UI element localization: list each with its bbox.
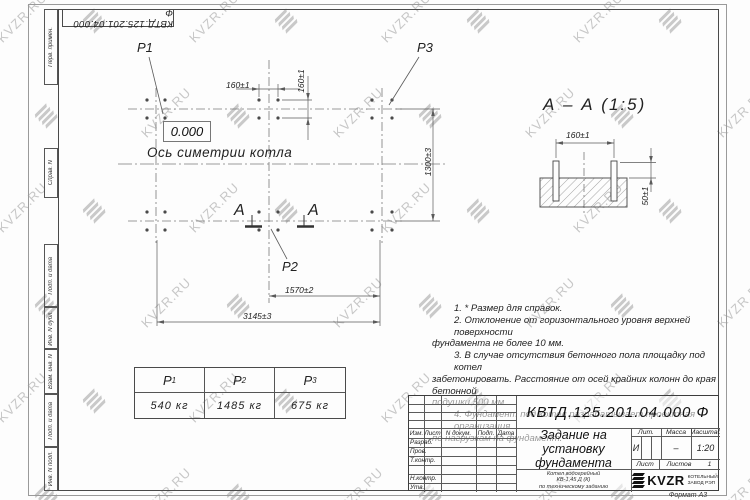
margin-field-inv-podl: Инв. N подл.: [44, 447, 58, 491]
tb-title: Задание на установку фундамента: [516, 428, 631, 469]
tb-subtitle: Котел водогрейный КВ-1,45 Д (К) по техни…: [516, 469, 631, 492]
tb-sig-empty: [410, 465, 441, 474]
tb-lit-value: И: [631, 436, 641, 459]
tb-sig-prov: Пров.: [410, 447, 441, 456]
tb-sig-tkontr: Т.контр.: [410, 456, 441, 465]
tb-mass-value: –: [661, 436, 691, 459]
load-table-value: 540 кг: [135, 393, 205, 418]
dim-mid-span: 1570±2: [285, 285, 313, 295]
load-label-p2: P2: [282, 259, 298, 274]
section-letter-left: А: [234, 202, 245, 220]
tb-title-line: Задание на: [540, 428, 607, 442]
tb-mass-label: Масса: [661, 428, 691, 436]
margin-label: Справ. N: [48, 160, 54, 185]
corner-doc-number: КВТД.125.201.04.000 Ф: [63, 7, 173, 29]
tb-col-izm: Изм.: [409, 429, 424, 438]
load-table-header: P2: [205, 368, 275, 393]
load-table-value: 675 кг: [275, 393, 345, 418]
load-header-sub: 1: [172, 376, 176, 385]
margin-field-sprav-n: Справ. N: [44, 148, 58, 198]
load-table-header: P3: [275, 368, 345, 393]
boiler-symmetry-axis-label: Ось симетрии котла: [147, 145, 292, 160]
tb-title-line: фундамента: [535, 456, 612, 470]
margin-field-podp-data-2: Подп. и дата: [44, 394, 58, 447]
tb-col-data: Дата: [496, 429, 516, 438]
load-table-value: 1485 кг: [205, 393, 275, 418]
margin-label: Подп. и дата: [48, 402, 54, 440]
tb-col-podp: Подп.: [476, 429, 496, 438]
tb-line: [409, 412, 516, 413]
note-line: 2. Отклонение от горизонтального уровня …: [432, 315, 724, 339]
note-line: 3. В случае отсутствия бетонного пола пл…: [432, 350, 724, 374]
dim-section-bolt-spacing: 160±1: [566, 130, 590, 140]
note-line: забетонировать. Расстояние от осей крайн…: [432, 374, 724, 398]
format-label: Формат А3: [648, 492, 728, 499]
tb-title-line: установку: [542, 442, 604, 456]
margin-field-inv-dubl: Инв. N дубл.: [44, 307, 58, 349]
tb-line: [476, 396, 477, 492]
level-mark: 0.000: [163, 121, 211, 142]
tb-line: [441, 396, 442, 492]
load-label-p1: P1: [137, 40, 153, 55]
tb-col-ndocum: N докум.: [441, 429, 476, 438]
tb-sheets-value: 1: [699, 459, 720, 469]
tb-sheets-label: Листов: [659, 459, 699, 469]
margin-field-vzam-inv: Взам. инв. N: [44, 349, 58, 394]
margin-field-podp-data-1: Подп. и дата: [44, 244, 58, 307]
tb-lit-label: Лит.: [631, 428, 661, 436]
kvzr-logo-text: KVZR: [647, 473, 684, 488]
tb-subtitle-line: по техническому заданию: [539, 484, 608, 490]
tb-line: [409, 420, 516, 421]
dim-total-span: 3145±3: [243, 311, 271, 321]
margin-label: Подп. и дата: [48, 257, 54, 295]
tb-line: [409, 404, 516, 405]
tb-logo-row: KVZR КОТЕЛЬНЫЙ ЗАВОД РЭП: [631, 469, 720, 492]
load-table: P1 P2 P3 540 кг 1485 кг 675 кг: [134, 367, 346, 419]
kvzr-company-name: КОТЕЛЬНЫЙ ЗАВОД РЭП: [688, 475, 718, 486]
tb-sig-utv: Утв.: [410, 483, 441, 492]
load-table-header: P1: [135, 368, 205, 393]
load-header-base: P: [303, 373, 312, 388]
dim-bolt-spacing-y: 160±1: [296, 59, 306, 103]
level-value: 0.000: [171, 124, 204, 139]
corner-doc-number-stamp: КВТД.125.201.04.000 Ф: [62, 9, 174, 27]
section-view-title: А – А (1:5): [543, 95, 646, 115]
note-line: 1. * Размер для справок.: [432, 303, 724, 315]
section-letter-right: А: [308, 202, 319, 220]
tb-scale-value: 1:20: [691, 436, 720, 459]
dim-row-spacing: 1300±3: [423, 140, 433, 184]
margin-label: Перв. примен.: [48, 27, 54, 67]
drawing-sheet: KVZR.RUKVZR.RUKVZR.RUKVZR.RUKVZR.RUKVZR.…: [0, 0, 750, 500]
tb-doc-number: КВТД.125.201.04.000 Ф: [516, 396, 720, 428]
tb-col-list: Лист: [424, 429, 441, 438]
kvzr-logo-icon: [633, 472, 644, 489]
margin-label: Инв. N дубл.: [48, 311, 54, 346]
dim-section-protrusion: 50±1: [640, 174, 650, 218]
tb-sig-nkontr: Н.контр.: [410, 474, 441, 483]
tb-line: [651, 436, 652, 459]
margin-label: Взам. инв. N: [48, 354, 54, 389]
load-header-base: P: [233, 373, 242, 388]
margin-field-perv-primen: Перв. примен.: [44, 9, 58, 85]
load-header-sub: 2: [242, 376, 246, 385]
tb-sheet-label: Лист: [631, 459, 659, 469]
tb-line: [641, 436, 642, 459]
tb-line: [496, 396, 497, 492]
margin-label: Инв. N подл.: [48, 451, 54, 486]
title-block: Изм. Лист N докум. Подп. Дата Разраб. Пр…: [408, 395, 719, 491]
note-line: фундамента не более 10 мм.: [432, 338, 724, 350]
dim-bolt-spacing-x: 160±1: [226, 80, 250, 90]
load-header-base: P: [163, 373, 172, 388]
company-line: ЗАВОД РЭП: [688, 481, 718, 487]
tb-scale-label: Масштаб: [691, 428, 720, 436]
load-header-sub: 3: [312, 376, 316, 385]
tb-sig-razrab: Разраб.: [410, 438, 441, 447]
load-label-p3: P3: [417, 40, 433, 55]
